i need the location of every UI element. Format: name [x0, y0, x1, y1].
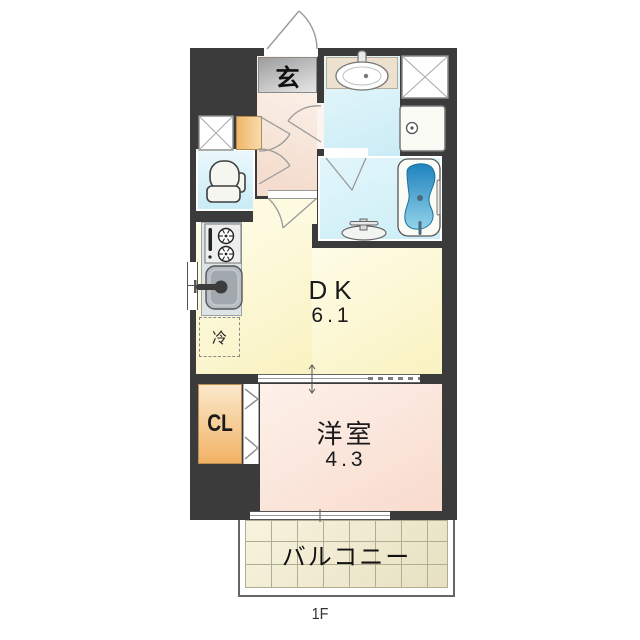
dk-room-label: DK 6.1: [280, 277, 380, 327]
dk-size: 6.1: [307, 304, 352, 327]
dk-floor-upper: [253, 199, 317, 224]
western-room-label: 洋室 4.3: [294, 421, 394, 471]
bathroom-floor: [318, 156, 442, 241]
western-room-name: 洋室: [313, 421, 374, 448]
balcony-window: [250, 511, 390, 520]
floor-number-label: 1F: [32, 606, 608, 624]
sliding-door: [258, 374, 368, 383]
entrance-door-swing-icon: [267, 11, 317, 49]
closet: CL: [198, 384, 242, 464]
toilet-room: [196, 149, 255, 211]
kitchen-counter: [201, 222, 242, 316]
hallway-dk-doorway: [268, 190, 317, 199]
closet-bifold-door: [243, 384, 259, 464]
dk-name: DK: [301, 277, 358, 304]
entrance-genkan: 玄: [258, 57, 317, 93]
balcony: バルコニー: [245, 520, 448, 588]
closet-label: CL: [207, 410, 233, 438]
vanity-counter: [326, 57, 398, 89]
sliding-door-track: [368, 374, 420, 383]
refrigerator-space: 冷: [199, 317, 240, 357]
balcony-label: バルコニー: [282, 537, 412, 572]
western-room-size: 4.3: [321, 448, 366, 471]
shoe-cabinet: [236, 116, 262, 150]
kitchen-window: [187, 262, 198, 310]
entrance-label: 玄: [276, 58, 300, 93]
refrigerator-label: 冷: [212, 327, 227, 348]
floor-plan-canvas: 玄 冷 DK 6.1 CL 洋室 4.3 バルコニー 1F: [0, 0, 640, 640]
